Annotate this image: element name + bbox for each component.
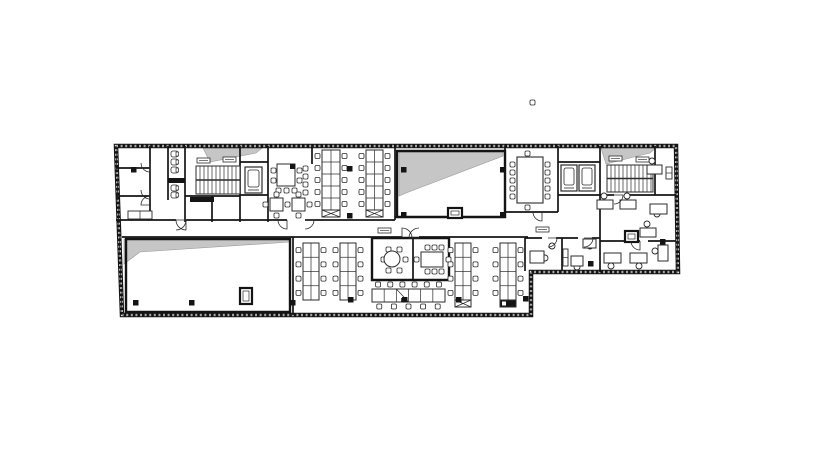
floor-plan-page bbox=[0, 0, 818, 466]
bench-desk-row bbox=[372, 282, 445, 309]
toilet-fixtures bbox=[171, 151, 179, 198]
floor-plan-canvas bbox=[0, 0, 818, 466]
